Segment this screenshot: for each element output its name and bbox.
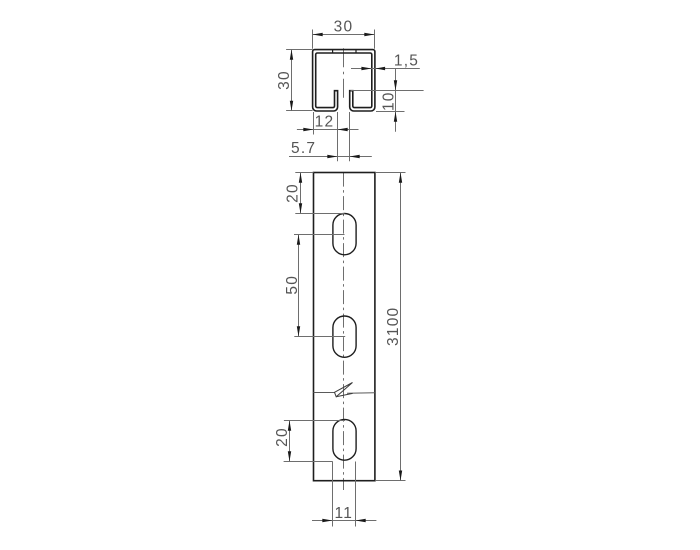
svg-text:11: 11 [335, 505, 354, 522]
svg-text:1,5: 1,5 [394, 53, 419, 70]
svg-text:3100: 3100 [385, 307, 402, 346]
svg-text:12: 12 [315, 114, 335, 131]
svg-text:30: 30 [276, 70, 293, 90]
svg-text:50: 50 [284, 275, 301, 295]
svg-text:20: 20 [285, 183, 302, 203]
svg-text:10: 10 [380, 91, 397, 111]
svg-text:5.7: 5.7 [291, 140, 316, 157]
svg-text:20: 20 [274, 427, 291, 447]
svg-text:30: 30 [334, 19, 354, 36]
